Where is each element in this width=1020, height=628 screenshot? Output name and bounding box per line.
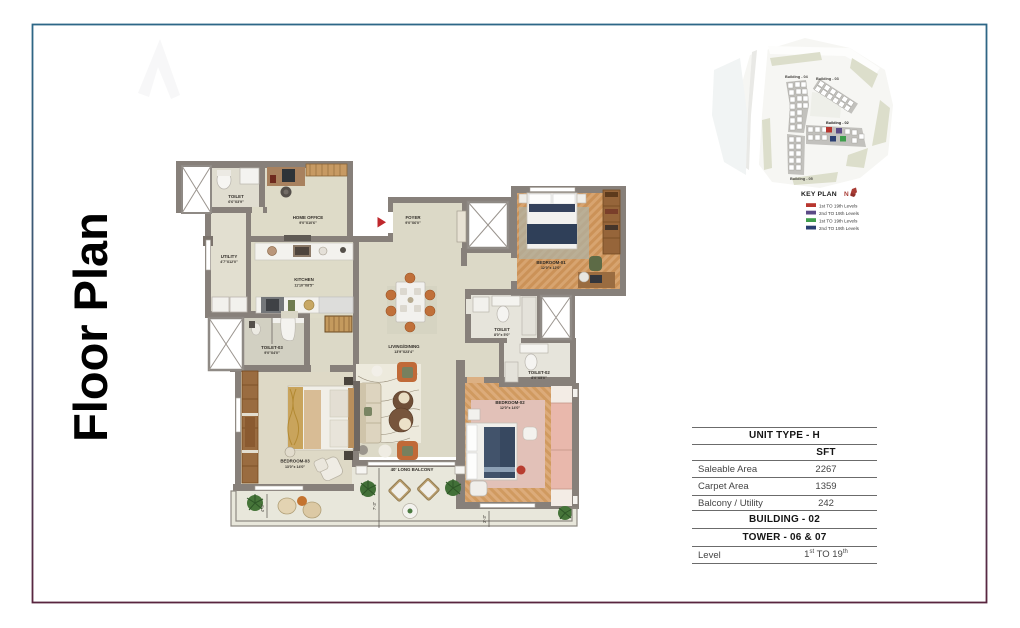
svg-text:KEY PLAN: KEY PLAN [801, 191, 837, 198]
svg-text:Building - 03: Building - 03 [816, 77, 839, 81]
svg-text:Building - 02: Building - 02 [826, 121, 849, 125]
svg-text:BEDROOM-01: BEDROOM-01 [536, 260, 566, 265]
svg-text:BEDROOM-02: BEDROOM-02 [495, 400, 525, 405]
svg-text:TOILET: TOILET [228, 194, 244, 199]
svg-text:1st TO 19th Levels: 1st TO 19th Levels [819, 203, 858, 208]
svg-text:12'0"x 14'0": 12'0"x 14'0" [500, 406, 520, 410]
svg-text:7'-3": 7'-3" [372, 501, 377, 510]
svg-text:9'0"X6'0": 9'0"X6'0" [405, 221, 421, 225]
svg-text:3'-3": 3'-3" [482, 514, 487, 523]
svg-text:KITCHEN: KITCHEN [294, 277, 314, 282]
svg-text:40' LONG BALCONY: 40' LONG BALCONY [391, 467, 434, 472]
svg-text:9'0"X4'0": 9'0"X4'0" [264, 351, 280, 355]
svg-text:8'0"X5'0": 8'0"X5'0" [531, 376, 547, 380]
svg-text:12'0"x 12'0": 12'0"x 12'0" [541, 266, 561, 270]
svg-text:9'0"X10'6": 9'0"X10'6" [299, 221, 317, 225]
svg-text:UTILITY: UTILITY [221, 254, 238, 259]
svg-text:LIVING/DINING: LIVING/DINING [388, 344, 420, 349]
svg-text:TOILET-03: TOILET-03 [261, 345, 283, 350]
svg-text:4'-5": 4'-5" [260, 503, 265, 512]
svg-text:TOILET-02: TOILET-02 [528, 370, 550, 375]
svg-text:2nd TO 19th Levels: 2nd TO 19th Levels [819, 226, 860, 231]
svg-text:4'7"X12'0": 4'7"X12'0" [220, 260, 238, 264]
svg-text:HOME OFFICE: HOME OFFICE [293, 215, 324, 220]
svg-text:13'0"x 14'0": 13'0"x 14'0" [285, 465, 305, 469]
svg-text:13'9"X23'4": 13'9"X23'4" [394, 350, 414, 354]
svg-text:8'0"x 5'0": 8'0"x 5'0" [494, 333, 510, 337]
svg-text:1st TO 19th Levels: 1st TO 19th Levels [819, 218, 858, 223]
svg-text:N: N [844, 191, 849, 198]
svg-text:11'10"X8'5": 11'10"X8'5" [294, 284, 314, 288]
svg-text:Building - 04: Building - 04 [785, 75, 809, 79]
svg-text:BEDROOM-03: BEDROOM-03 [280, 459, 310, 464]
svg-text:TOILET: TOILET [494, 327, 510, 332]
svg-text:FOYER: FOYER [405, 215, 421, 220]
svg-text:2nd TO 19th Levels: 2nd TO 19th Levels [819, 211, 860, 216]
svg-text:6'6"X3'9": 6'6"X3'9" [228, 200, 244, 204]
